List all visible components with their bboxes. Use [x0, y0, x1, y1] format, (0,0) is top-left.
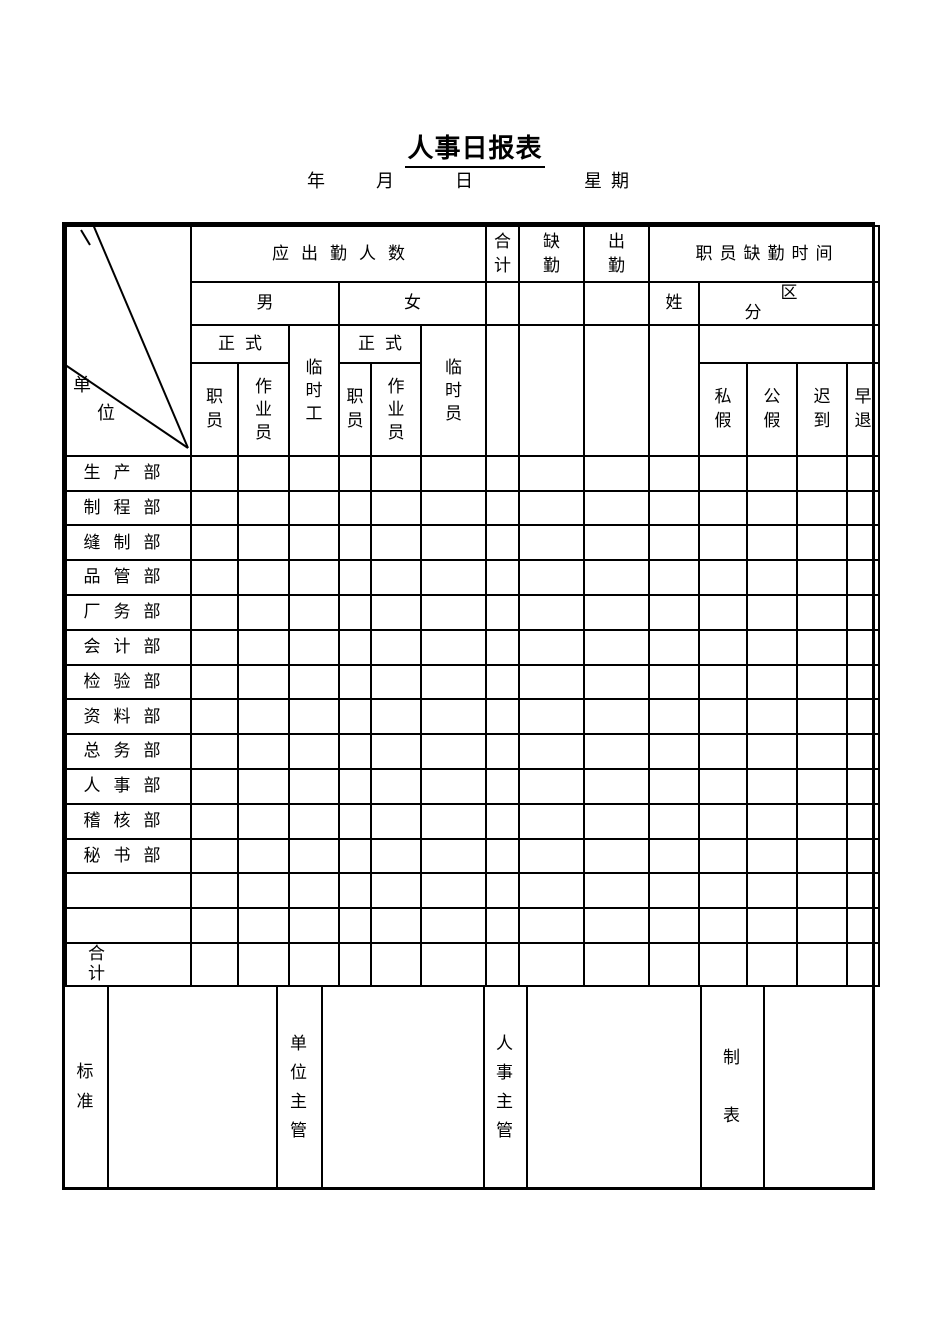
blank-data-cell [486, 839, 519, 874]
blank-data-cell [797, 734, 847, 769]
blank-data-cell [584, 769, 649, 804]
blank-data-cell [339, 839, 371, 874]
blank-data-cell [289, 839, 339, 874]
blank-data-cell [747, 560, 797, 595]
blank-data-cell [289, 769, 339, 804]
blank-data-cell [747, 908, 797, 943]
blank-data-cell [747, 943, 797, 986]
blank-data-cell [238, 456, 289, 491]
blank-data-cell [519, 665, 584, 700]
department-row: 品管部 [66, 560, 879, 595]
department-row: 检验部 [66, 665, 879, 700]
blank-data-cell [339, 525, 371, 560]
blank-data-cell [519, 734, 584, 769]
blank-data-cell [584, 699, 649, 734]
blank-data-cell [797, 665, 847, 700]
blank-data-cell [519, 560, 584, 595]
blank-data-cell [797, 560, 847, 595]
department-row: 生产部 [66, 456, 879, 491]
footer-unit-manager-cell: 单位主管 [276, 987, 321, 1187]
blank-data-cell [421, 908, 486, 943]
blank-data-cell [847, 734, 879, 769]
blank-data-cell [649, 769, 699, 804]
blank-data-cell [238, 769, 289, 804]
blank-data-cell [238, 699, 289, 734]
blank-data-cell [371, 804, 421, 839]
blank-header-cell [649, 325, 699, 456]
blank-department-label [66, 908, 191, 943]
blank-data-cell [421, 491, 486, 526]
header-male: 男 [191, 282, 339, 325]
blank-data-cell [421, 456, 486, 491]
footer-prepared-by-space [763, 987, 872, 1187]
blank-data-cell [649, 873, 699, 908]
department-label: 缝制部 [66, 525, 191, 560]
department-label: 厂务部 [66, 595, 191, 630]
blank-data-cell [421, 630, 486, 665]
blank-data-cell [289, 491, 339, 526]
date-month-label: 月 [376, 167, 394, 193]
blank-data-cell [519, 769, 584, 804]
blank-data-cell [371, 630, 421, 665]
blank-data-cell [339, 491, 371, 526]
blank-data-cell [584, 560, 649, 595]
blank-data-cell [847, 908, 879, 943]
footer-hr-manager-label: 人事主管 [496, 1029, 515, 1145]
blank-data-cell [519, 839, 584, 874]
blank-data-cell [699, 873, 747, 908]
header-staff-female: 职员 [339, 363, 371, 456]
blank-data-cell [584, 491, 649, 526]
blank-data-cell [847, 595, 879, 630]
department-row: 总务部 [66, 734, 879, 769]
footer-standard-cell: 标准 [65, 987, 107, 1187]
header-required-attendance: 应出勤人数 [191, 226, 486, 282]
blank-data-cell [699, 630, 747, 665]
department-label: 制程部 [66, 491, 191, 526]
blank-data-cell [649, 491, 699, 526]
blank-data-cell [191, 699, 238, 734]
blank-data-cell [797, 804, 847, 839]
blank-data-cell [371, 873, 421, 908]
blank-data-cell [191, 560, 238, 595]
blank-category-band [699, 325, 879, 363]
blank-header-cell [486, 325, 519, 456]
blank-data-cell [584, 734, 649, 769]
blank-data-cell [699, 699, 747, 734]
blank-data-cell [421, 525, 486, 560]
blank-data-cell [847, 456, 879, 491]
blank-data-cell [584, 525, 649, 560]
blank-data-cell [238, 839, 289, 874]
blank-data-cell [847, 525, 879, 560]
blank-data-cell [519, 630, 584, 665]
header-temp-worker: 临时工 [289, 325, 339, 456]
signature-footer: 标准 单位主管 人事主管 制表 [65, 987, 872, 1187]
header-formal-female: 正式 [339, 325, 421, 363]
blank-data-cell [649, 908, 699, 943]
blank-data-cell [486, 699, 519, 734]
blank-data-cell [421, 665, 486, 700]
corner-label-unit-char1: 单 [73, 375, 91, 397]
corner-label-unit-char2: 位 [97, 403, 115, 425]
blank-data-cell [649, 456, 699, 491]
blank-data-cell [649, 630, 699, 665]
blank-data-cell [797, 595, 847, 630]
blank-data-cell [339, 769, 371, 804]
date-weekday-label: 星期 [584, 167, 638, 193]
blank-data-cell [289, 630, 339, 665]
blank-data-cell [191, 595, 238, 630]
header-early-leave: 早退 [847, 363, 879, 456]
blank-data-cell [584, 456, 649, 491]
blank-data-cell [747, 804, 797, 839]
blank-data-cell [339, 804, 371, 839]
blank-data-cell [486, 595, 519, 630]
blank-data-cell [371, 491, 421, 526]
blank-data-cell [584, 943, 649, 986]
blank-data-cell [486, 630, 519, 665]
blank-data-cell [649, 665, 699, 700]
blank-data-cell [421, 699, 486, 734]
blank-data-cell [649, 595, 699, 630]
blank-data-cell [584, 873, 649, 908]
header-female: 女 [339, 282, 486, 325]
blank-data-cell [486, 734, 519, 769]
blank-data-cell [699, 804, 747, 839]
blank-header-cell [486, 282, 519, 325]
blank-data-cell [289, 734, 339, 769]
blank-data-cell [371, 595, 421, 630]
blank-data-cell [339, 560, 371, 595]
total-row: 合计 [66, 943, 879, 986]
blank-data-cell [519, 943, 584, 986]
department-row: 稽核部 [66, 804, 879, 839]
blank-data-cell [339, 908, 371, 943]
blank-header-cell [584, 282, 649, 325]
page-title: 人事日报表 [405, 128, 544, 168]
blank-data-cell [371, 699, 421, 734]
blank-data-cell [289, 873, 339, 908]
blank-data-cell [486, 943, 519, 986]
blank-data-cell [339, 630, 371, 665]
blank-data-cell [371, 525, 421, 560]
footer-unit-manager-label: 单位主管 [290, 1029, 309, 1145]
footer-unit-manager-space [321, 987, 483, 1187]
blank-data-cell [238, 908, 289, 943]
blank-data-cell [649, 839, 699, 874]
blank-data-cell [847, 491, 879, 526]
blank-data-cell [649, 699, 699, 734]
department-label: 生产部 [66, 456, 191, 491]
blank-data-cell [486, 525, 519, 560]
blank-data-cell [371, 560, 421, 595]
department-label: 稽核部 [66, 804, 191, 839]
blank-data-cell [486, 873, 519, 908]
blank-data-cell [191, 769, 238, 804]
blank-data-cell [339, 699, 371, 734]
blank-data-cell [191, 456, 238, 491]
blank-data-cell [699, 734, 747, 769]
blank-data-cell [191, 630, 238, 665]
blank-data-cell [584, 804, 649, 839]
blank-data-cell [238, 943, 289, 986]
blank-data-cell [191, 873, 238, 908]
blank-data-cell [289, 943, 339, 986]
blank-data-cell [847, 665, 879, 700]
total-row-label: 合计 [66, 943, 191, 986]
department-label: 总务部 [66, 734, 191, 769]
blank-data-cell [797, 908, 847, 943]
blank-data-cell [747, 769, 797, 804]
blank-data-cell [371, 456, 421, 491]
blank-data-cell [371, 839, 421, 874]
blank-data-cell [584, 908, 649, 943]
department-label: 会计部 [66, 630, 191, 665]
blank-data-cell [421, 595, 486, 630]
personnel-daily-report-form: 单 位 应出勤人数 合计 缺勤 出勤 职员缺勤时间 男 女 姓 区分 正式 临时… [62, 222, 875, 1190]
blank-data-cell [649, 734, 699, 769]
footer-hr-manager-cell: 人事主管 [483, 987, 526, 1187]
blank-data-cell [797, 525, 847, 560]
blank-data-cell [238, 804, 289, 839]
blank-data-cell [486, 456, 519, 491]
blank-data-cell [289, 560, 339, 595]
blank-data-cell [519, 873, 584, 908]
blank-data-cell [191, 839, 238, 874]
blank-data-cell [699, 908, 747, 943]
blank-data-cell [339, 943, 371, 986]
blank-header-cell [584, 325, 649, 456]
diagonal-divider-lines [67, 227, 188, 449]
blank-data-cell [339, 873, 371, 908]
blank-data-cell [699, 943, 747, 986]
footer-standard-space [107, 987, 276, 1187]
blank-data-cell [747, 525, 797, 560]
blank-row [66, 908, 879, 943]
blank-data-cell [649, 525, 699, 560]
footer-prepared-by-label: 制表 [723, 1029, 742, 1145]
blank-data-cell [847, 699, 879, 734]
blank-data-cell [747, 665, 797, 700]
blank-data-cell [289, 595, 339, 630]
blank-data-cell [584, 839, 649, 874]
blank-data-cell [699, 491, 747, 526]
blank-data-cell [699, 595, 747, 630]
blank-data-cell [289, 804, 339, 839]
department-label: 检验部 [66, 665, 191, 700]
blank-data-cell [191, 525, 238, 560]
blank-data-cell [797, 630, 847, 665]
blank-data-cell [747, 630, 797, 665]
department-label: 品管部 [66, 560, 191, 595]
department-row: 会计部 [66, 630, 879, 665]
blank-data-cell [519, 804, 584, 839]
blank-row [66, 873, 879, 908]
department-row: 制程部 [66, 491, 879, 526]
department-row: 秘书部 [66, 839, 879, 874]
blank-data-cell [699, 769, 747, 804]
blank-data-cell [847, 804, 879, 839]
blank-data-cell [289, 908, 339, 943]
blank-data-cell [847, 873, 879, 908]
header-category: 区分 [699, 282, 879, 325]
blank-data-cell [584, 595, 649, 630]
blank-data-cell [238, 734, 289, 769]
blank-data-cell [797, 491, 847, 526]
blank-data-cell [289, 525, 339, 560]
blank-data-cell [486, 908, 519, 943]
blank-data-cell [649, 804, 699, 839]
blank-data-cell [238, 595, 289, 630]
blank-data-cell [421, 839, 486, 874]
header-staff-male: 职员 [191, 363, 238, 456]
blank-data-cell [797, 699, 847, 734]
blank-data-cell [486, 804, 519, 839]
blank-data-cell [486, 665, 519, 700]
report-table: 单 位 应出勤人数 合计 缺勤 出勤 职员缺勤时间 男 女 姓 区分 正式 临时… [65, 225, 880, 987]
blank-data-cell [519, 595, 584, 630]
header-temp-staff: 临时员 [421, 325, 486, 456]
department-row: 厂务部 [66, 595, 879, 630]
blank-data-cell [584, 630, 649, 665]
blank-data-cell [339, 595, 371, 630]
blank-data-cell [238, 560, 289, 595]
blank-data-cell [421, 560, 486, 595]
blank-data-cell [519, 699, 584, 734]
blank-data-cell [519, 456, 584, 491]
department-label: 资料部 [66, 699, 191, 734]
page-title-row: 人事日报表 [0, 128, 950, 168]
blank-data-cell [371, 908, 421, 943]
blank-data-cell [847, 943, 879, 986]
header-official-leave: 公假 [747, 363, 797, 456]
blank-data-cell [339, 665, 371, 700]
blank-data-cell [289, 456, 339, 491]
blank-data-cell [797, 943, 847, 986]
corner-unit-cell: 单 位 [66, 226, 191, 456]
blank-data-cell [486, 560, 519, 595]
department-label: 秘书部 [66, 839, 191, 874]
blank-data-cell [699, 665, 747, 700]
blank-header-cell [519, 325, 584, 456]
blank-data-cell [191, 491, 238, 526]
header-operator-male: 作业员 [238, 363, 289, 456]
footer-standard-label: 标准 [77, 1057, 96, 1117]
department-row: 缝制部 [66, 525, 879, 560]
blank-data-cell [747, 734, 797, 769]
blank-data-cell [421, 769, 486, 804]
blank-data-cell [747, 491, 797, 526]
blank-data-cell [486, 769, 519, 804]
blank-data-cell [847, 630, 879, 665]
blank-data-cell [699, 839, 747, 874]
blank-data-cell [371, 943, 421, 986]
blank-data-cell [797, 769, 847, 804]
blank-data-cell [519, 491, 584, 526]
header-late: 迟到 [797, 363, 847, 456]
header-formal-male: 正式 [191, 325, 289, 363]
blank-data-cell [238, 873, 289, 908]
header-total: 合计 [486, 226, 519, 282]
blank-data-cell [421, 734, 486, 769]
blank-department-label [66, 873, 191, 908]
blank-data-cell [797, 456, 847, 491]
blank-data-cell [797, 839, 847, 874]
blank-data-cell [847, 839, 879, 874]
blank-data-cell [747, 699, 797, 734]
blank-data-cell [699, 456, 747, 491]
blank-data-cell [238, 525, 289, 560]
date-year-label: 年 [307, 167, 325, 193]
blank-data-cell [747, 595, 797, 630]
department-row: 人事部 [66, 769, 879, 804]
blank-data-cell [191, 665, 238, 700]
blank-data-cell [649, 943, 699, 986]
blank-data-cell [747, 873, 797, 908]
blank-data-cell [649, 560, 699, 595]
blank-data-cell [371, 769, 421, 804]
blank-data-cell [421, 873, 486, 908]
footer-hr-manager-space [526, 987, 700, 1187]
header-operator-female: 作业员 [371, 363, 421, 456]
header-personal-leave: 私假 [699, 363, 747, 456]
blank-data-cell [699, 560, 747, 595]
footer-prepared-by-cell: 制表 [700, 987, 763, 1187]
department-row: 资料部 [66, 699, 879, 734]
header-name: 姓 [649, 282, 699, 325]
date-day-label: 日 [455, 167, 473, 193]
blank-data-cell [191, 943, 238, 986]
blank-data-cell [847, 769, 879, 804]
blank-data-cell [584, 665, 649, 700]
department-label: 人事部 [66, 769, 191, 804]
blank-data-cell [238, 665, 289, 700]
header-staff-absence-time: 职员缺勤时间 [649, 226, 879, 282]
blank-data-cell [519, 525, 584, 560]
blank-data-cell [421, 943, 486, 986]
blank-header-cell [519, 282, 584, 325]
blank-data-cell [519, 908, 584, 943]
blank-data-cell [747, 456, 797, 491]
blank-data-cell [191, 804, 238, 839]
header-absent: 缺勤 [519, 226, 584, 282]
blank-data-cell [238, 491, 289, 526]
blank-data-cell [191, 908, 238, 943]
blank-data-cell [421, 804, 486, 839]
blank-data-cell [238, 630, 289, 665]
blank-data-cell [371, 665, 421, 700]
blank-data-cell [797, 873, 847, 908]
blank-data-cell [699, 525, 747, 560]
blank-data-cell [847, 560, 879, 595]
blank-data-cell [339, 456, 371, 491]
blank-data-cell [289, 699, 339, 734]
blank-data-cell [486, 491, 519, 526]
blank-data-cell [371, 734, 421, 769]
blank-data-cell [339, 734, 371, 769]
header-present: 出勤 [584, 226, 649, 282]
blank-data-cell [747, 839, 797, 874]
blank-data-cell [191, 734, 238, 769]
blank-data-cell [289, 665, 339, 700]
